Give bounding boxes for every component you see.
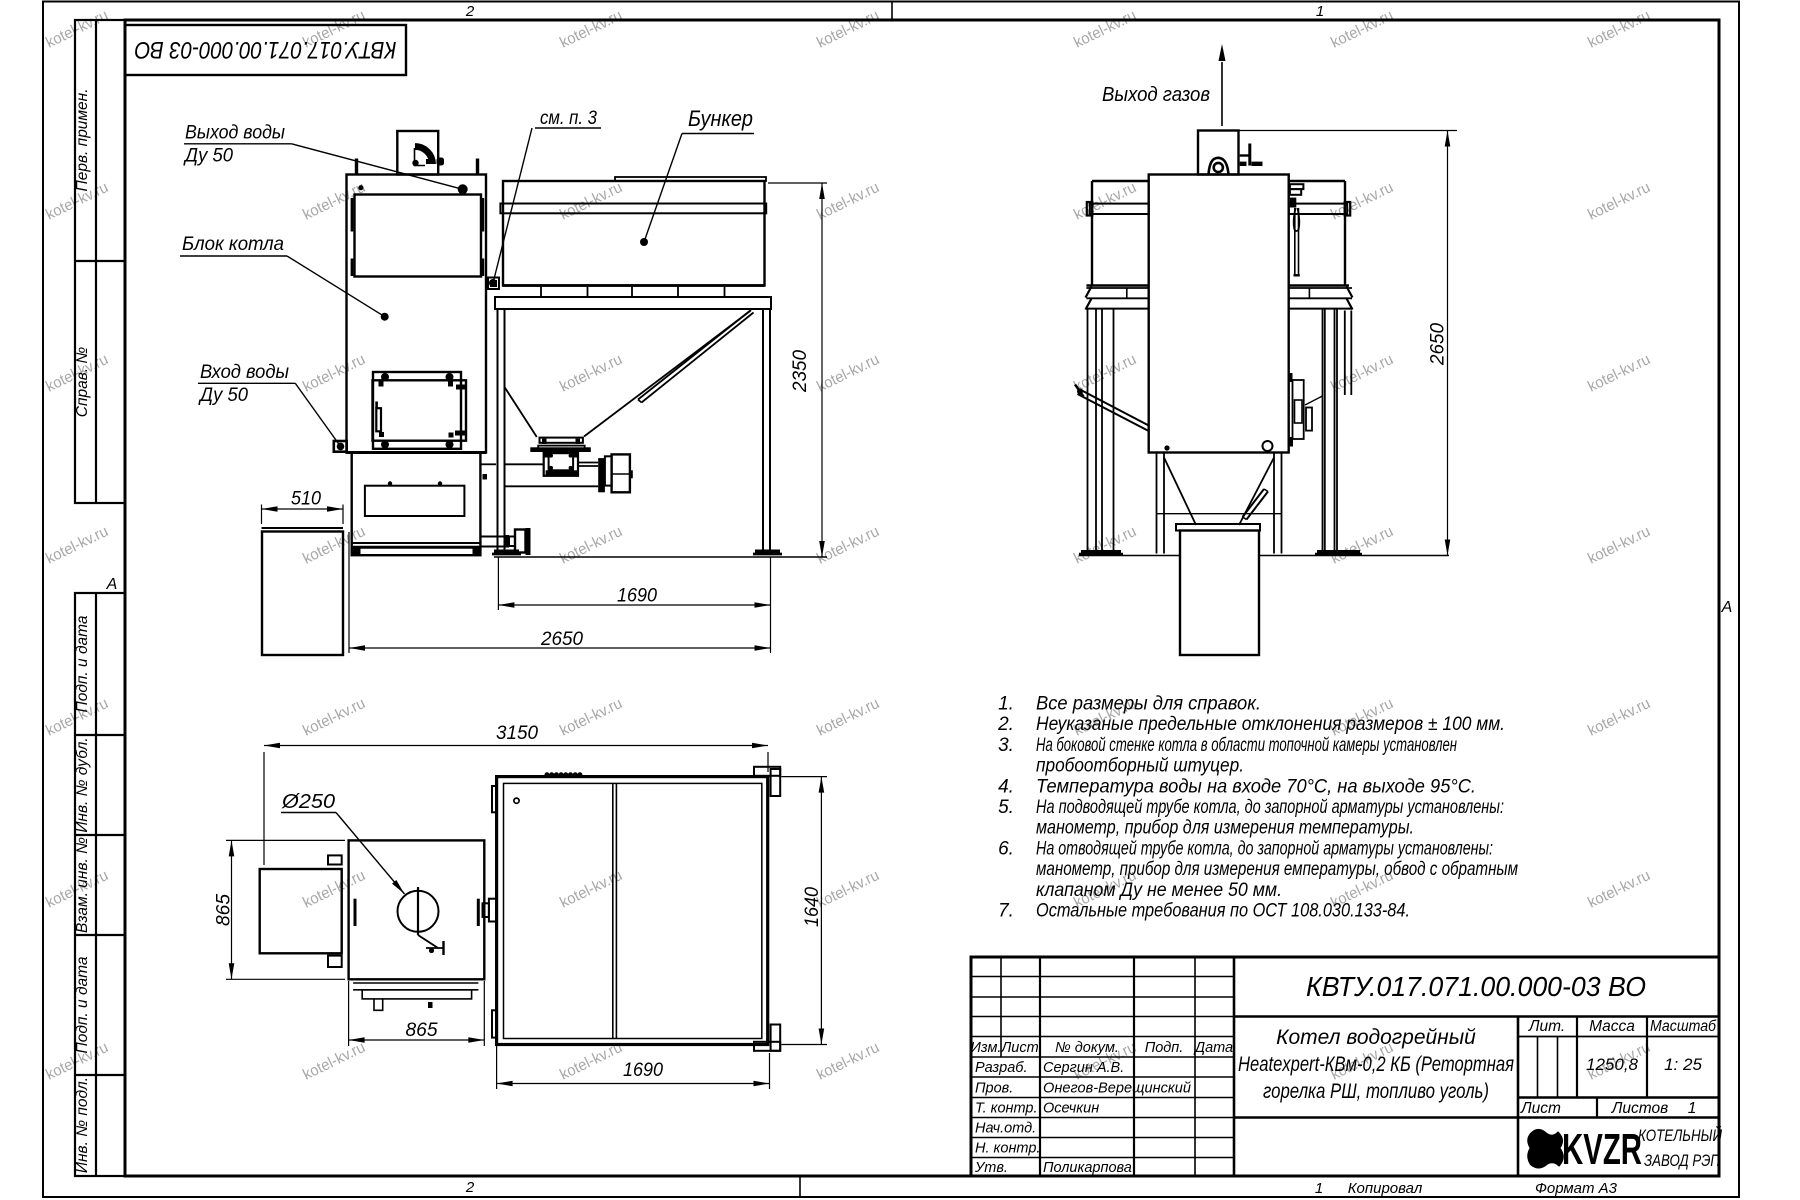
svg-text:1250,8: 1250,8 — [1586, 1055, 1639, 1074]
svg-text:Т. контр.: Т. контр. — [975, 1101, 1038, 1117]
svg-text:Дата: Дата — [1193, 1040, 1233, 1056]
svg-text:Осечкин: Осечкин — [1043, 1101, 1099, 1117]
svg-text:клапаном Ду не менее 50 мм.: клапаном Ду не менее 50 мм. — [1036, 880, 1282, 901]
svg-text:№ докум.: № докум. — [1055, 1040, 1119, 1056]
svg-text:Листов: Листов — [1611, 1100, 1668, 1117]
svg-text:3150: 3150 — [496, 723, 538, 744]
svg-text:Все размеры для справок.: Все размеры для справок. — [1036, 694, 1261, 715]
svg-text:Вход воды: Вход воды — [200, 361, 289, 383]
svg-text:2650: 2650 — [1428, 323, 1449, 366]
svg-text:На отводящей трубе котла, до з: На отводящей трубе котла, до запорной ар… — [1036, 838, 1493, 859]
svg-text:Сергин А.В.: Сергин А.В. — [1043, 1060, 1124, 1076]
svg-text:3.: 3. — [998, 735, 1014, 756]
svg-text:пробоотборный штуцер.: пробоотборный штуцер. — [1036, 756, 1244, 777]
svg-text:Взам. инв. №: Взам. инв. № — [74, 837, 91, 933]
svg-text:7.: 7. — [998, 901, 1014, 922]
svg-text:Бункер: Бункер — [688, 106, 753, 131]
svg-text:1: 1 — [1688, 1100, 1697, 1117]
svg-text:Heatexpert-КВм-0,2 КБ (Ретортн: Heatexpert-КВм-0,2 КБ (Ретортная — [1238, 1053, 1514, 1076]
svg-text:А: А — [106, 576, 118, 593]
svg-text:Перв. примен.: Перв. примен. — [74, 88, 91, 191]
svg-text:Онегов-Верещинский: Онегов-Верещинский — [1043, 1081, 1191, 1097]
svg-text:Лист: Лист — [1520, 1100, 1561, 1117]
svg-text:1690: 1690 — [617, 586, 657, 607]
svg-text:1: 1 — [1316, 3, 1324, 20]
svg-text:Остальные требования по ОСТ 10: Остальные требования по ОСТ 108.030.133-… — [1036, 901, 1410, 922]
svg-text:1: 25: 1: 25 — [1664, 1055, 1702, 1074]
svg-text:Неуказаные предельные отклонен: Неуказаные предельные отклонения размеро… — [1036, 714, 1505, 735]
svg-text:КВТУ.017.071.00.000-03 ВО: КВТУ.017.071.00.000-03 ВО — [1306, 971, 1646, 1002]
svg-text:КОТЕЛЬНЫЙ: КОТЕЛЬНЫЙ — [1638, 1126, 1722, 1145]
svg-text:манометр, прибор для измерения: манометр, прибор для измерения емператур… — [1036, 859, 1518, 880]
svg-text:Котел водогрейный: Котел водогрейный — [1276, 1026, 1476, 1049]
svg-text:Выход газов: Выход газов — [1102, 83, 1210, 106]
svg-text:см. п. 3: см. п. 3 — [540, 107, 597, 129]
svg-text:Пров.: Пров. — [975, 1081, 1013, 1097]
svg-text:КВТУ.017.071.00.000-03 ВО: КВТУ.017.071.00.000-03 ВО — [135, 36, 397, 63]
svg-text:865: 865 — [214, 894, 235, 926]
svg-text:1640: 1640 — [802, 887, 823, 927]
svg-text:ЗАВОД РЭП: ЗАВОД РЭП — [1644, 1152, 1720, 1170]
svg-text:Подп.: Подп. — [1145, 1040, 1184, 1056]
svg-text:Лист: Лист — [1000, 1040, 1038, 1056]
svg-text:1: 1 — [1315, 1180, 1323, 1197]
svg-text:2350: 2350 — [790, 350, 811, 393]
svg-text:2: 2 — [465, 1179, 475, 1196]
svg-text:горелка РШ, топливо уголь): горелка РШ, топливо уголь) — [1263, 1080, 1489, 1103]
svg-text:4.: 4. — [998, 776, 1014, 797]
svg-text:Нач.отд.: Нач.отд. — [975, 1121, 1036, 1137]
svg-text:Подп. и дата: Подп. и дата — [74, 615, 91, 712]
svg-text:5.: 5. — [998, 797, 1014, 818]
svg-text:Масштаб: Масштаб — [1650, 1018, 1717, 1035]
svg-text:Формат А3: Формат А3 — [1535, 1180, 1618, 1197]
svg-text:Копировал: Копировал — [1348, 1180, 1423, 1197]
svg-text:1690: 1690 — [623, 1060, 663, 1081]
svg-text:На боковой стенке котла в обла: На боковой стенке котла в области топочн… — [1036, 735, 1457, 756]
svg-text:2650: 2650 — [540, 629, 583, 650]
svg-text:Инв. № дубл.: Инв. № дубл. — [74, 737, 91, 832]
svg-text:Масса: Масса — [1589, 1018, 1635, 1035]
svg-text:6.: 6. — [998, 838, 1014, 859]
svg-text:Блок котла: Блок котла — [182, 233, 284, 255]
svg-text:Ду 50: Ду 50 — [183, 145, 233, 167]
svg-text:Поликарпова: Поликарпова — [1043, 1160, 1132, 1176]
svg-text:А: А — [1721, 599, 1733, 616]
svg-text:865: 865 — [406, 1020, 438, 1041]
svg-text:Подп. и дата: Подп. и дата — [74, 956, 91, 1053]
svg-text:Разраб.: Разраб. — [975, 1060, 1027, 1076]
svg-text:Ду 50: Ду 50 — [198, 384, 248, 406]
svg-text:KVZR: KVZR — [1562, 1125, 1642, 1174]
svg-text:На подводящей трубе котла, до: На подводящей трубе котла, до запорной а… — [1036, 797, 1504, 818]
svg-text:Инв. № подл.: Инв. № подл. — [74, 1077, 91, 1173]
svg-text:Утв.: Утв. — [974, 1160, 1008, 1176]
svg-text:Лит.: Лит. — [1528, 1018, 1565, 1035]
svg-text:Н. контр.: Н. контр. — [975, 1141, 1040, 1157]
svg-text:510: 510 — [291, 489, 321, 510]
svg-text:2.: 2. — [997, 714, 1014, 735]
svg-text:Ø250: Ø250 — [281, 791, 335, 813]
svg-text:Изм.: Изм. — [971, 1040, 1002, 1056]
svg-text:Выход воды: Выход воды — [185, 122, 285, 144]
svg-text:1.: 1. — [998, 694, 1014, 715]
svg-text:2: 2 — [465, 3, 475, 20]
svg-text:Справ. №: Справ. № — [74, 347, 91, 418]
svg-text:Температура воды на входе 70°С: Температура воды на входе 70°С, на выход… — [1036, 776, 1476, 797]
svg-text:манометр, прибор для измерения: манометр, прибор для измерения температу… — [1036, 818, 1414, 839]
